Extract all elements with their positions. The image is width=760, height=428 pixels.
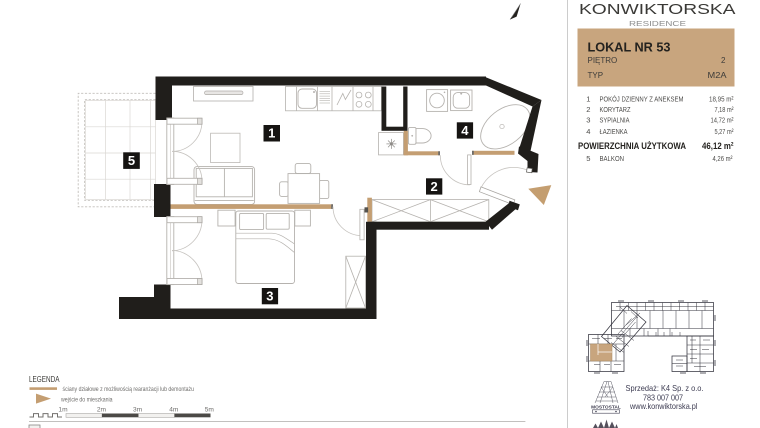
- svg-text:46,12 m²: 46,12 m²: [702, 141, 734, 151]
- svg-text:14,72 m²: 14,72 m²: [711, 116, 734, 125]
- svg-text:1: 1: [268, 126, 275, 141]
- svg-text:LOKAL NR 53: LOKAL NR 53: [588, 40, 671, 55]
- svg-text:4m: 4m: [169, 406, 179, 413]
- svg-text:BALKON: BALKON: [600, 154, 625, 163]
- svg-text:LEGENDA: LEGENDA: [29, 374, 60, 384]
- svg-text:RESIDENCE: RESIDENCE: [629, 19, 686, 28]
- svg-text:1m: 1m: [58, 406, 68, 413]
- svg-text:18,95 m²: 18,95 m²: [709, 95, 734, 104]
- svg-text:3: 3: [266, 289, 273, 304]
- svg-text:ściany działowe z możliwością: ściany działowe z możliwością rearanżacj…: [63, 386, 195, 393]
- svg-text:1: 1: [586, 95, 590, 104]
- svg-text:5: 5: [128, 153, 135, 168]
- svg-text:wejście do mieszkania: wejście do mieszkania: [60, 397, 113, 404]
- svg-text:ŁAZIENKA: ŁAZIENKA: [600, 127, 629, 136]
- svg-text:POKÓJ DZIENNY Z ANEKSEM: POKÓJ DZIENNY Z ANEKSEM: [600, 95, 684, 104]
- svg-text:4,26 m²: 4,26 m²: [713, 154, 733, 163]
- svg-text:SYPIALNIA: SYPIALNIA: [600, 116, 631, 125]
- svg-text:PIĘTRO: PIĘTRO: [588, 56, 618, 65]
- svg-text:KONWIKTORSKA: KONWIKTORSKA: [579, 1, 736, 18]
- svg-text:5,27 m²: 5,27 m²: [715, 127, 734, 136]
- svg-text:7,18 m²: 7,18 m²: [715, 105, 734, 114]
- svg-text:4: 4: [461, 123, 469, 138]
- svg-text:TYP: TYP: [588, 71, 604, 80]
- svg-text:5: 5: [586, 154, 590, 163]
- svg-text:POWIERZCHNIA UŻYTKOWA: POWIERZCHNIA UŻYTKOWA: [578, 141, 686, 151]
- svg-text:www.konwiktorska.pl: www.konwiktorska.pl: [629, 401, 697, 411]
- svg-text:3: 3: [586, 116, 590, 125]
- svg-text:KORYTARZ: KORYTARZ: [600, 105, 631, 114]
- svg-text:M2A: M2A: [708, 71, 728, 80]
- svg-text:3m: 3m: [133, 406, 143, 413]
- svg-text:2m: 2m: [97, 406, 107, 413]
- svg-text:2: 2: [430, 179, 437, 194]
- svg-text:4: 4: [586, 127, 590, 136]
- svg-text:Sprzedaż: K4 Sp. z o.o.: Sprzedaż: K4 Sp. z o.o.: [626, 383, 704, 393]
- svg-text:5m: 5m: [205, 406, 215, 413]
- svg-text:2: 2: [721, 56, 726, 65]
- svg-text:2: 2: [586, 105, 590, 114]
